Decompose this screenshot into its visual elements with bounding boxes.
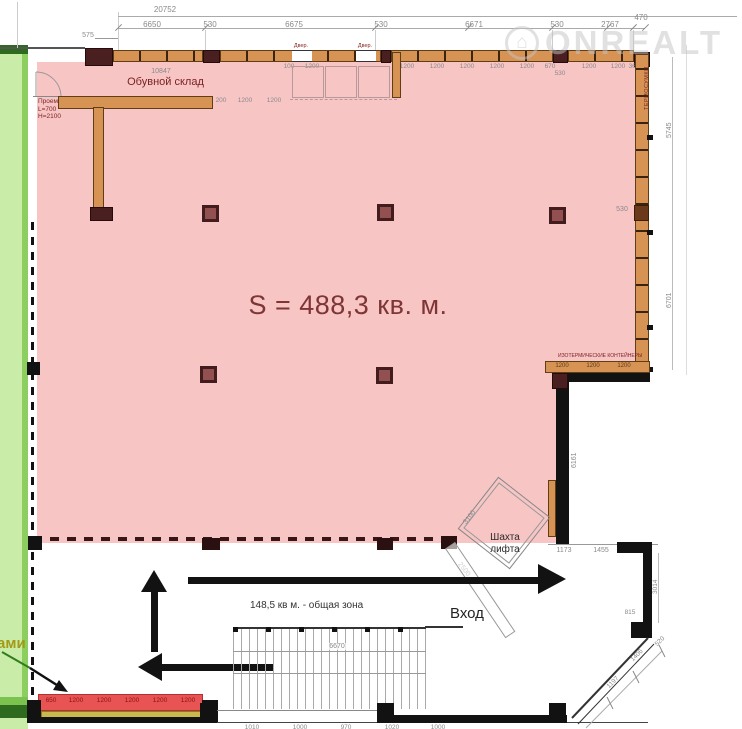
column [202, 205, 219, 222]
main-area-label: S = 488,3 кв. м. [218, 290, 478, 321]
stairs-ticks [233, 627, 426, 632]
dash-block [377, 538, 393, 550]
dim-label: 530 [549, 70, 571, 77]
dashed-line-horizontal [33, 537, 457, 541]
arrow-right-shaft [188, 577, 540, 584]
floor-plan: 20752 6650 530 6675 530 6671 530 2767 47… [0, 0, 742, 729]
chain-line [686, 45, 687, 375]
chain-line [672, 57, 673, 370]
bottom-wall-left [27, 717, 217, 723]
dim-label-5745: 5745 [666, 112, 673, 148]
stairs [233, 627, 426, 709]
dim-label-6161: 6161 [571, 440, 578, 480]
bottom-column [377, 703, 394, 723]
dim-label-530r: 530 [612, 206, 632, 213]
dim-label: 670 [538, 63, 562, 70]
wall-block [90, 207, 113, 221]
dim-label: 1020 [377, 724, 407, 729]
dim-label: 1200 [90, 697, 118, 704]
elevator-label-2: лифта [480, 544, 530, 555]
watermark-house-icon: ⌂ [505, 26, 539, 60]
ext-line [17, 2, 18, 48]
dim-label: 970 [331, 724, 361, 729]
wall-tick [647, 135, 653, 140]
bottom-column [200, 703, 217, 723]
dim-label-815: 815 [620, 609, 640, 616]
dim-label: 1200 [580, 363, 606, 369]
bottom-thin-line2 [217, 710, 377, 711]
dim-label: 6671 [456, 20, 492, 29]
column [377, 204, 394, 221]
door-label: Двер. [352, 43, 378, 49]
column [549, 207, 566, 224]
wall-tick [647, 230, 653, 235]
dim-label: 470 [623, 13, 659, 22]
ext-line [118, 12, 119, 50]
column [376, 367, 393, 384]
common-zone-label: 148,5 кв м. - общая зона [250, 600, 375, 611]
bottom-wall-right [377, 715, 567, 723]
watermark: ⌂ ONREALT [505, 24, 723, 62]
dim-label: 1200 [174, 697, 202, 704]
ext-line [205, 30, 206, 50]
iso-containers-label: ИЗОТЕРМИЧЕСКИЕ КОНТЕЙНЕРЫ [558, 353, 638, 359]
stairs-landing-line [233, 673, 426, 674]
diagonal-wall [555, 540, 742, 729]
dim-label: 1200 [260, 97, 288, 104]
dim-label-total: 20752 [140, 5, 190, 14]
dashed-line-vertical [31, 222, 34, 695]
dim-line-575 [95, 38, 118, 39]
dim-label: 530 [192, 20, 228, 29]
wall-block [203, 50, 220, 63]
opening-line3: H=2100 [38, 113, 61, 121]
dim-label: 1200 [574, 63, 604, 70]
dim-label: 6675 [276, 20, 312, 29]
wall-block [381, 50, 391, 63]
arrow-left-head [138, 653, 162, 681]
dim-label: 1200 [482, 63, 512, 70]
dim-label-10847: 10847 [143, 68, 179, 75]
top-left-edge-line [0, 47, 85, 49]
shaft-side-wall [548, 480, 556, 537]
arrow-up-head [141, 570, 167, 592]
thermo-bags-label: ТЕРМОСУМКИ [644, 62, 650, 110]
door-gap [356, 50, 376, 62]
shelving-dashed-line [290, 99, 397, 100]
pointer-arrow [0, 630, 80, 700]
dash-block [202, 538, 220, 550]
dim-label: 1010 [237, 724, 267, 729]
wall-tick [647, 325, 653, 330]
shelving-box [292, 66, 324, 98]
stairs-landing-line [233, 651, 426, 652]
inner-wall-v [556, 373, 569, 545]
dim-label: 530 [363, 20, 399, 29]
dim-label: 6650 [134, 20, 170, 29]
dim-label: 1200 [118, 697, 146, 704]
top-wall-segment [113, 50, 203, 62]
watermark-brand: ONREALT [545, 24, 723, 62]
dash-block [28, 536, 42, 550]
door-label: Двер. [288, 43, 314, 49]
inner-wall-h [563, 373, 650, 382]
dim-label: 1200 [611, 363, 637, 369]
mini-wall [392, 52, 401, 98]
dim-label: 1200 [549, 363, 575, 369]
shoe-warehouse-label: Обувной склад [118, 76, 213, 88]
entrance-label: Вход [450, 605, 484, 622]
shelving-box [358, 66, 390, 98]
arrow-up-shaft [151, 589, 158, 652]
green-strip-band-dark [0, 705, 28, 718]
dim-label: 1200 [452, 63, 482, 70]
shelf-bar [58, 96, 213, 109]
dim-label: 1200 [231, 97, 259, 104]
door-gap [292, 50, 312, 62]
dim-label: 1200 [422, 63, 452, 70]
left-orange-wall [93, 107, 104, 208]
dim-label: 1200 [146, 697, 174, 704]
dim-label: 1000 [285, 724, 315, 729]
stairs-top-edge-ext [425, 626, 463, 628]
wall-block-530 [634, 205, 649, 221]
wall-block [85, 48, 113, 66]
column [200, 366, 217, 383]
dim-label-6670: 6670 [322, 643, 352, 650]
dim-label-6701: 6701 [666, 282, 673, 318]
dim-label: 1000 [423, 724, 453, 729]
dim-label: 200 [211, 97, 231, 104]
elevator-label-1: Шахта [478, 532, 532, 543]
wall-block [552, 373, 568, 389]
dim-label-3014: 3014 [652, 570, 659, 604]
shelving-box [325, 66, 357, 98]
